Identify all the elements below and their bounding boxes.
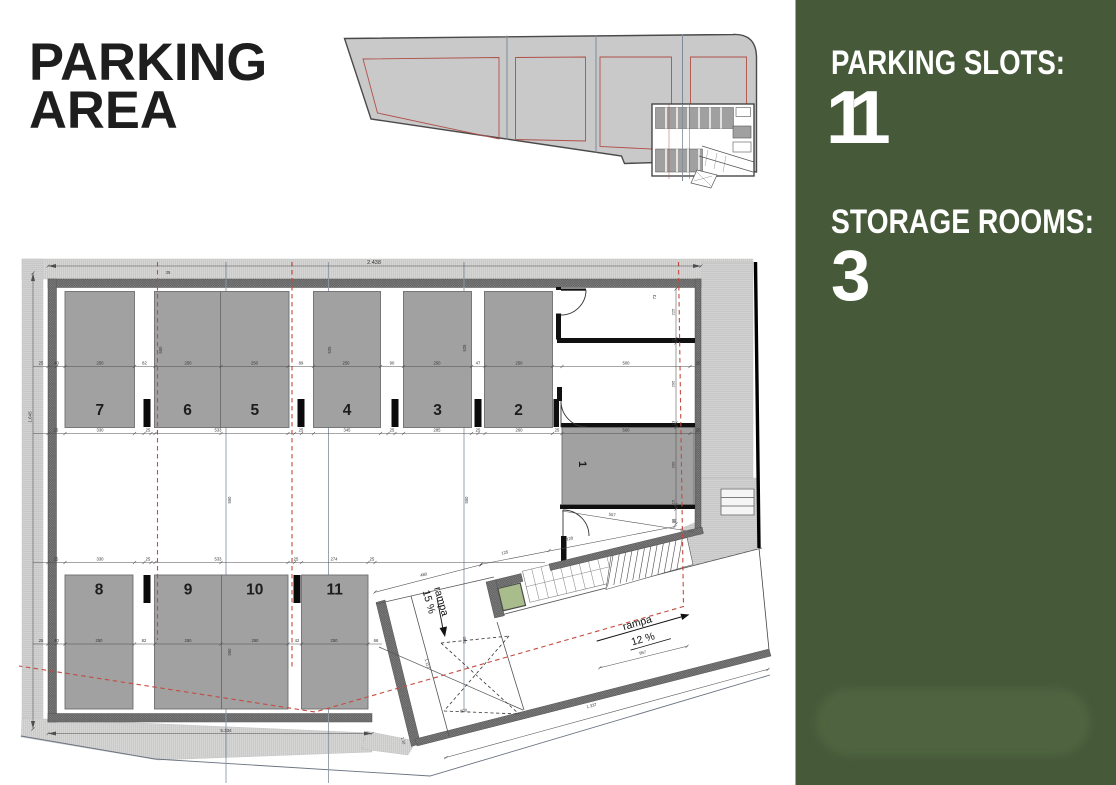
- svg-text:82: 82: [142, 361, 147, 366]
- svg-text:500: 500: [623, 428, 631, 433]
- svg-text:25: 25: [696, 361, 701, 366]
- svg-text:250: 250: [185, 361, 193, 366]
- svg-text:550: 550: [464, 496, 469, 504]
- svg-text:AREA: AREA: [29, 81, 178, 140]
- svg-text:1.645: 1.645: [28, 411, 33, 423]
- svg-text:250: 250: [97, 361, 105, 366]
- svg-text:250: 250: [251, 361, 259, 366]
- svg-text:525: 525: [327, 346, 332, 354]
- svg-text:1: 1: [576, 461, 588, 467]
- svg-text:25: 25: [54, 428, 59, 433]
- svg-text:4: 4: [343, 402, 352, 419]
- svg-text:290: 290: [670, 461, 675, 468]
- svg-text:250: 250: [516, 361, 524, 366]
- svg-text:1: 1: [849, 75, 891, 159]
- svg-text:86: 86: [670, 518, 675, 523]
- svg-text:25: 25: [39, 361, 44, 366]
- svg-text:82: 82: [142, 638, 147, 643]
- svg-text:3: 3: [831, 237, 871, 316]
- svg-text:250: 250: [434, 361, 442, 366]
- svg-text:225: 225: [670, 308, 675, 315]
- svg-text:40: 40: [54, 638, 59, 643]
- svg-text:250: 250: [252, 638, 260, 643]
- svg-text:25: 25: [294, 557, 299, 562]
- svg-text:25: 25: [146, 428, 151, 433]
- svg-text:73: 73: [652, 294, 657, 299]
- svg-text:7: 7: [95, 402, 104, 419]
- svg-text:15: 15: [670, 499, 675, 504]
- svg-text:6: 6: [183, 402, 192, 419]
- svg-text:13: 13: [670, 420, 675, 425]
- svg-text:274: 274: [331, 557, 339, 562]
- svg-text:533: 533: [215, 557, 223, 562]
- svg-text:9: 9: [184, 582, 193, 599]
- svg-text:10: 10: [246, 582, 263, 599]
- svg-text:40: 40: [54, 361, 59, 366]
- svg-text:550: 550: [462, 636, 467, 644]
- svg-text:345: 345: [344, 428, 352, 433]
- svg-text:89: 89: [299, 361, 304, 366]
- svg-text:15: 15: [670, 338, 675, 343]
- svg-text:11: 11: [327, 582, 344, 599]
- svg-text:35: 35: [166, 270, 171, 275]
- svg-text:25: 25: [555, 428, 560, 433]
- svg-text:25: 25: [146, 557, 151, 562]
- svg-text:285: 285: [434, 428, 442, 433]
- svg-text:500: 500: [158, 346, 163, 354]
- svg-text:5: 5: [250, 402, 259, 419]
- svg-text:500: 500: [623, 361, 631, 366]
- svg-text:47: 47: [476, 361, 481, 366]
- svg-text:550: 550: [227, 496, 232, 504]
- svg-text:330: 330: [97, 428, 105, 433]
- svg-text:42: 42: [295, 638, 300, 643]
- svg-text:90: 90: [390, 361, 395, 366]
- svg-text:8: 8: [95, 582, 104, 599]
- svg-text:25: 25: [299, 428, 304, 433]
- svg-text:25: 25: [696, 428, 701, 433]
- svg-text:250: 250: [96, 638, 104, 643]
- svg-text:525: 525: [462, 344, 467, 352]
- svg-text:533: 533: [215, 428, 223, 433]
- svg-text:STORAGE ROOMS:: STORAGE ROOMS:: [831, 203, 1094, 241]
- svg-text:2: 2: [514, 402, 523, 419]
- svg-text:5.334: 5.334: [220, 728, 232, 733]
- svg-text:25: 25: [390, 428, 395, 433]
- svg-text:330: 330: [97, 557, 105, 562]
- svg-text:3: 3: [433, 402, 442, 419]
- svg-text:25: 25: [54, 557, 59, 562]
- svg-text:25: 25: [476, 428, 481, 433]
- svg-text:250: 250: [331, 638, 339, 643]
- svg-text:25: 25: [39, 638, 44, 643]
- svg-text:260: 260: [516, 428, 524, 433]
- svg-text:25: 25: [370, 557, 375, 562]
- svg-text:295: 295: [670, 380, 675, 387]
- svg-text:250: 250: [343, 361, 351, 366]
- svg-text:66: 66: [374, 638, 379, 643]
- svg-text:2.438: 2.438: [367, 260, 381, 266]
- svg-text:550: 550: [227, 648, 232, 656]
- svg-text:250: 250: [185, 638, 193, 643]
